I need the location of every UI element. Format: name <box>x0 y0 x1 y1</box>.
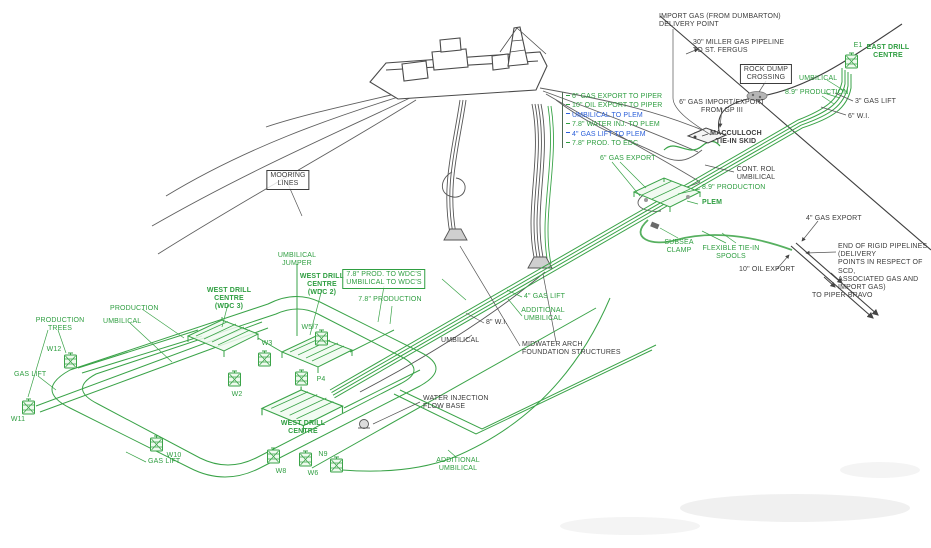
tree-w12 <box>65 353 77 368</box>
tree-w2 <box>229 371 241 386</box>
riser-legend-item: 4" GAS LIFT TO PLEM <box>566 130 662 139</box>
label-east-drill-centre: EAST DRILL CENTRE <box>867 44 910 60</box>
tree-w6 <box>300 451 312 466</box>
tree-p4 <box>296 370 308 385</box>
label-control-umbilical: CONT. ROL UMBILICAL <box>737 166 776 182</box>
label-well-w6: W6 <box>308 470 319 478</box>
label-umbilical-jumper: UMBILICAL JUMPER <box>278 252 316 268</box>
label-umbilical-ne: UMBILICAL <box>799 75 837 83</box>
riser-legend-item: 6" GAS EXPORT TO PIPER <box>566 92 662 101</box>
tree-w5-7 <box>316 330 328 345</box>
seabed-smudges <box>560 462 920 535</box>
label-west-drill-centre-wdc3: WEST DRILL CENTRE (WDC 3) <box>207 287 251 312</box>
structures <box>188 92 767 433</box>
label-gas-lift-3in: 3" GAS LIFT <box>855 98 896 106</box>
label-production-trees: PRODUCTION TREES <box>36 317 85 333</box>
plem-structure <box>634 178 700 212</box>
tree-w3 <box>259 351 271 366</box>
riser-legend: 6" GAS EXPORT TO PIPER10" OIL EXPORT TO … <box>562 92 662 148</box>
label-prod-umbilical-to-wdcs: 7.8" PROD. TO WDC'S UMBILICAL TO WDC'S <box>342 269 425 289</box>
label-flexible-tie-in-spools: FLEXIBLE TIE-IN SPOOLS <box>703 245 760 261</box>
label-well-w11: W11 <box>11 416 25 424</box>
label-umbilical-mid: UMBILICAL <box>441 337 479 345</box>
label-well-w8: W8 <box>276 468 287 476</box>
tree-n9 <box>331 457 343 472</box>
label-well-w3: W3 <box>262 340 273 348</box>
riser-legend-item: UMBILICAL TO PLEM <box>566 111 662 120</box>
label-production-89-mid: 8.9" PRODUCTION <box>702 184 765 192</box>
label-additional-umbilical-s: ADDITIONAL UMBILICAL <box>436 457 480 473</box>
vessel <box>370 27 547 99</box>
label-subsea-clamp: SUBSEA CLAMP <box>664 239 693 255</box>
label-well-e1: E1 <box>854 42 863 50</box>
label-miller-pipeline: 30" MILLER GAS PIPELINE TO ST. FERGUS <box>693 39 784 55</box>
label-macculloch-tie-in-skid: MACCULLOCH TIE-IN SKID <box>710 130 762 146</box>
label-gas-lift-4in: 4" GAS LIFT <box>524 293 565 301</box>
subsea-clamp-structure <box>650 222 659 230</box>
label-well-p4: P4 <box>317 376 326 384</box>
tree-w11 <box>23 399 35 414</box>
label-to-piper-bravo: TO PIPER BRAVO <box>812 292 873 300</box>
label-production-89-ne: 8.9" PRODUCTION <box>785 89 848 97</box>
tree-w8 <box>268 448 280 463</box>
label-gas-export-4in: 4" GAS EXPORT <box>806 215 862 223</box>
tree-w10 <box>151 436 163 451</box>
riser-legend-item: 7.8" WATER INJ. TO PLEM <box>566 120 662 129</box>
label-oil-export-10in: 10" OIL EXPORT <box>739 266 795 274</box>
riser-legend-item: 7.8" PROD. TO EDC <box>566 139 662 148</box>
label-mooring-lines: MOORING LINES <box>266 170 309 190</box>
label-import-gas-delivery: IMPORT GAS (FROM DUMBARTON) DELIVERY POI… <box>659 13 781 29</box>
label-water-injection-flow-base: WATER INJECTION FLOW BASE <box>423 395 489 411</box>
label-well-n9: N9 <box>318 451 327 459</box>
subsea-field-diagram: 6" GAS EXPORT TO PIPER10" OIL EXPORT TO … <box>0 0 931 548</box>
label-additional-umbilical-mid: ADDITIONAL UMBILICAL <box>521 307 565 323</box>
derrick <box>508 27 528 66</box>
label-rock-dump-crossing: ROCK DUMP CROSSING <box>740 64 792 84</box>
label-west-drill-centre-wdc2: WEST DRILL CENTRE (WDC 2) <box>300 273 344 298</box>
label-wi-6in: 6" W.I. <box>848 113 869 121</box>
label-umbilical-nw: UMBILICAL <box>103 318 141 326</box>
label-well-w12: W12 <box>47 346 62 354</box>
tree-e1 <box>846 53 858 68</box>
label-wi-8in: 8" W.I. <box>486 319 507 327</box>
label-plem: PLEM <box>702 199 722 207</box>
umbilical-line <box>360 272 545 392</box>
water-injection-flow-base-structure <box>358 420 370 429</box>
riser-legend-item: 10" OIL EXPORT TO PIPER <box>566 101 662 110</box>
label-midwater-arch: MIDWATER ARCH FOUNDATION STRUCTURES <box>522 341 621 357</box>
label-west-drill-centre-south: WEST DRILL CENTRE <box>281 420 325 436</box>
label-well-w5-7: W5/7 <box>302 324 319 332</box>
label-well-w10: W10 <box>167 452 182 460</box>
label-production-78: 7.8" PRODUCTION <box>358 296 421 304</box>
label-gas-export-6in: 6" GAS EXPORT <box>600 155 656 163</box>
label-gas-import-export-gp3: 6" GAS IMPORT/EXPORT FROM GP III <box>679 99 765 115</box>
label-well-w2: W2 <box>232 391 243 399</box>
label-end-of-rigid-pipelines: END OF RIGID PIPELINES (DELIVERY POINTS … <box>838 243 931 292</box>
label-production-nw: PRODUCTION <box>110 305 159 313</box>
label-gas-lift-w: GAS LIFT <box>14 371 46 379</box>
leader-lines <box>288 29 853 424</box>
